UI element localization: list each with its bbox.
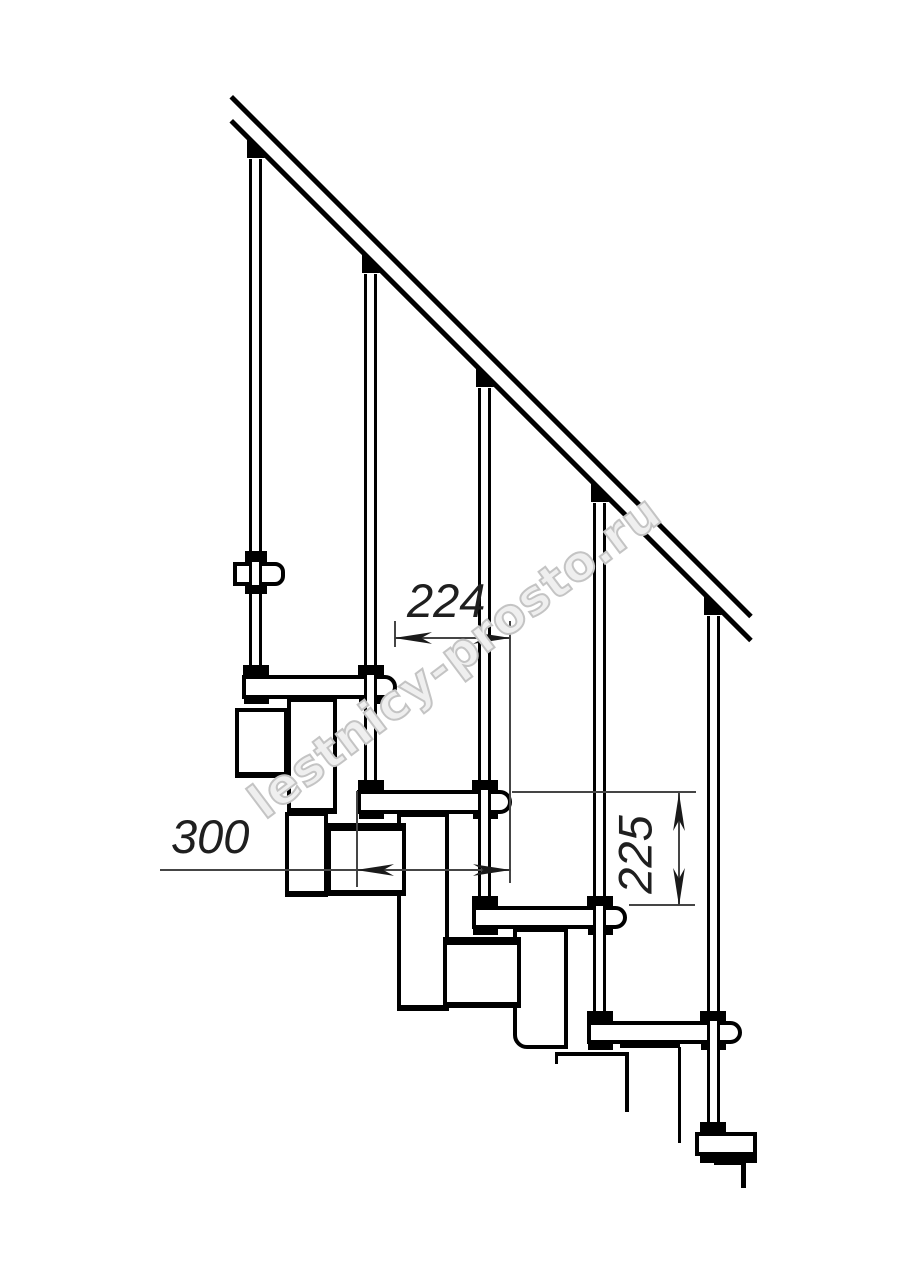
baluster-flange — [700, 1011, 726, 1021]
module-box-2 — [327, 823, 406, 896]
module-tube-3 — [513, 928, 568, 1049]
baluster-5 — [707, 616, 720, 1132]
tread-pad — [620, 1041, 680, 1048]
baluster-flange — [472, 780, 498, 790]
tread-pad — [588, 1041, 613, 1050]
module-box-3 — [443, 937, 521, 1008]
dim-225-label: 225 — [603, 798, 667, 910]
baluster-flange — [245, 585, 267, 594]
dim-300-ext-left — [356, 791, 358, 887]
module-box-4-right — [625, 1052, 629, 1112]
module-tube-1-lower — [285, 812, 328, 897]
module-box-4-top — [557, 1052, 625, 1056]
baluster-flange — [472, 896, 498, 906]
dim-224-ext-left — [394, 621, 396, 647]
baluster-flange — [245, 551, 267, 562]
dim-224-ext-right — [509, 621, 511, 883]
tread-pad — [473, 926, 498, 935]
dim-225-ext-top — [512, 791, 696, 793]
dim-300-line — [160, 869, 511, 871]
tread-pad — [359, 810, 384, 819]
tread-pad — [244, 695, 269, 704]
handrail-lower-line — [229, 119, 752, 642]
baluster-flange — [700, 1122, 726, 1132]
floor-step-line-vertical — [741, 1161, 746, 1188]
module-tube-4-edge — [678, 1047, 681, 1143]
baluster-flange — [587, 1011, 613, 1021]
staircase-drawing: 224 300 225 lestnicy-prosto.ru — [0, 0, 914, 1280]
handrail-upper-line — [229, 95, 752, 618]
baluster-flange — [243, 665, 269, 675]
baluster-flange — [358, 780, 384, 790]
baluster-1 — [249, 159, 262, 675]
module-box-4-left-stub — [555, 1052, 558, 1064]
